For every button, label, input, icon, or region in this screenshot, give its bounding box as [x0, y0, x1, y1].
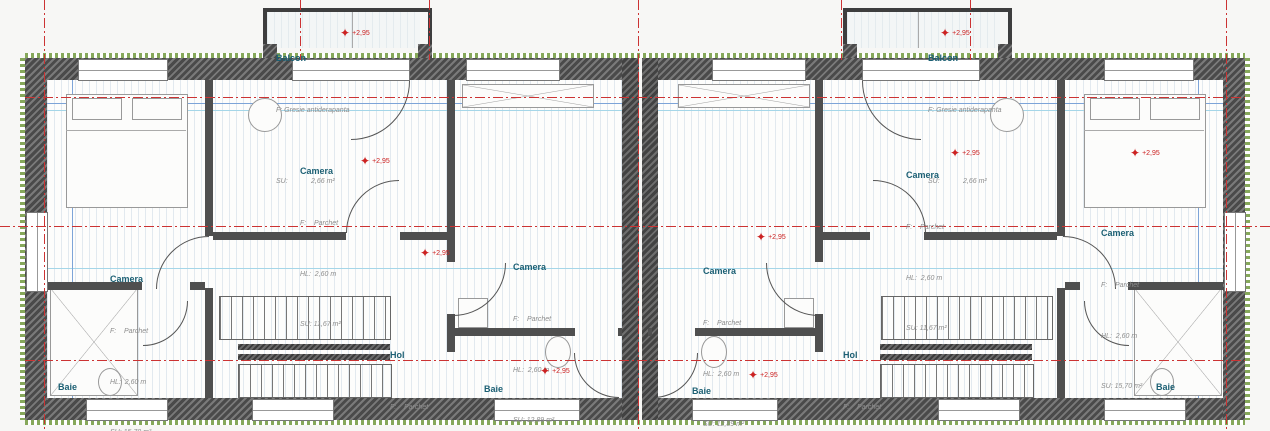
elevation-value: +2,95	[952, 30, 970, 37]
balcony-pier	[843, 44, 857, 58]
window	[466, 59, 560, 81]
room-name: Camera	[110, 274, 151, 286]
window	[712, 59, 806, 81]
room-finish: F: Gresie antiderapanta	[928, 106, 1002, 115]
room-label: Baie F: Gresie HL: 2,60 m SU: 2,87 m²	[1156, 340, 1193, 431]
room-finish: F: Parchet	[110, 327, 151, 336]
wall-partition	[190, 282, 205, 290]
pillow	[132, 98, 182, 120]
elevation-value: +2,95	[552, 368, 570, 375]
wall-partition	[815, 80, 823, 262]
elevation-marker: +2,95	[940, 28, 970, 38]
elevation-marker: +2,95	[360, 156, 390, 166]
wall-partition	[1065, 282, 1080, 290]
room-label: Baie F: Gresie HL: 2,60 m SU: 5,17 m²	[484, 342, 521, 431]
room-name: Camera	[513, 262, 554, 274]
axis-line	[1226, 0, 1227, 431]
room-name: Hol	[390, 350, 428, 362]
room-finish: F: Parchet	[390, 403, 428, 412]
wall-partition	[447, 314, 455, 352]
wall-partition	[618, 328, 622, 336]
room-surface: SU: 11,67 m²	[906, 324, 947, 333]
room-height: HL: 2,60 m	[1101, 332, 1142, 341]
room-name: Camera	[906, 170, 947, 182]
pillow	[1090, 98, 1140, 120]
elevation-marker: +2,95	[756, 232, 786, 242]
elevation-marker: +2,95	[950, 148, 980, 158]
elevation-value: +2,95	[432, 250, 450, 257]
axis-line	[638, 0, 639, 431]
room-finish: F: Gresie antiderapanta	[276, 106, 350, 115]
axis-line	[841, 0, 842, 60]
room-finish: F: Parchet	[843, 403, 881, 412]
elevation-value: +2,95	[352, 30, 370, 37]
wall-partition	[817, 232, 870, 240]
elevation-marker: +2,95	[340, 28, 370, 38]
axis-line	[44, 0, 45, 431]
room-name: Camera	[703, 266, 744, 278]
axis-line	[429, 0, 430, 60]
room-name: Balcon	[928, 53, 1002, 65]
elevation-marker: +2,95	[1130, 148, 1160, 158]
room-height: HL: 2,60 m	[300, 270, 341, 279]
wall-partition	[1128, 282, 1223, 290]
elevation-value: +2,95	[962, 150, 980, 157]
room-label: Baie F: Gresie HL: 2,60 m SU: 5,17 m²	[692, 344, 729, 431]
wall-partition	[205, 80, 213, 236]
elevation-marker: +2,95	[748, 370, 778, 380]
balcony-pier	[263, 44, 277, 58]
room-label: Hol F: Parchet HL: 2,60 m SU: 6,08 m²	[390, 308, 428, 431]
window	[252, 399, 334, 421]
room-name: Camera	[300, 166, 341, 178]
axis-line	[25, 97, 1245, 98]
wardrobe	[678, 84, 810, 108]
room-name: Baie	[692, 386, 729, 398]
wall-partition	[1057, 288, 1065, 398]
room-label: Camera F: Parchet HL: 2,60 m SU: 11,67 m…	[300, 124, 341, 371]
floor-plan-canvas: Balcon F: Gresie antiderapanta SU: 2,66 …	[0, 0, 1270, 431]
room-finish: F: Parchet	[300, 219, 341, 228]
wall-partition	[1057, 80, 1065, 236]
room-name: Balcon	[276, 53, 350, 65]
wall-partition	[447, 80, 455, 262]
room-label: Camera F: Parchet HL: 2,60 m SU: 11,67 m…	[906, 128, 947, 375]
pillow	[72, 98, 122, 120]
room-height: HL: 2,60 m	[110, 378, 151, 387]
axis-line	[0, 226, 1270, 227]
stair-rail	[880, 344, 1032, 350]
blanket-line	[1084, 130, 1204, 131]
wall-partition	[815, 314, 823, 352]
room-finish: F: Parchet	[906, 223, 947, 232]
room-height: HL: 2,60 m	[906, 274, 947, 283]
wardrobe	[462, 84, 594, 108]
room-label: Hol F: Parchet HL: 2,60 m SU: 6,08 m²	[843, 308, 881, 431]
expansion-joint	[639, 58, 642, 420]
balcony-divider	[918, 12, 919, 48]
room-finish: F: Parchet	[1101, 281, 1142, 290]
window	[1104, 59, 1194, 81]
room-label: Baie F: Gresie HL: 2,60 m SU: 2,87 m²	[58, 340, 95, 431]
room-finish: F: Parchet	[513, 315, 554, 324]
elevation-value: +2,95	[768, 234, 786, 241]
window	[78, 59, 168, 81]
room-name: Baie	[1156, 382, 1193, 394]
axis-line	[25, 360, 1245, 361]
wall-partition	[648, 328, 652, 336]
room-surface: SU: 15,70 m²	[1101, 382, 1142, 391]
insulation-strip	[20, 58, 25, 420]
elevation-value: +2,95	[372, 158, 390, 165]
elevation-value: +2,95	[1142, 150, 1160, 157]
elevation-value: +2,95	[760, 372, 778, 379]
window	[1224, 212, 1246, 292]
wall-partition	[400, 232, 453, 240]
pillow	[1150, 98, 1200, 120]
window	[938, 399, 1020, 421]
room-name: Hol	[843, 350, 881, 362]
blanket-line	[66, 130, 186, 131]
room-label: Camera F: Parchet HL: 2,60 m SU: 15,70 m…	[1101, 186, 1142, 431]
wall-partition	[205, 288, 213, 398]
room-name: Baie	[484, 384, 521, 396]
elevation-marker: +2,95	[420, 248, 450, 258]
stair-flight	[880, 364, 1034, 398]
elevation-marker: +2,95	[540, 366, 570, 376]
insulation-strip	[25, 420, 1245, 425]
room-name: Camera	[1101, 228, 1142, 240]
room-surface: SU: 11,67 m²	[300, 320, 341, 329]
room-name: Baie	[58, 382, 95, 394]
room-finish: F: Parchet	[703, 319, 744, 328]
room-label: Camera F: Parchet HL: 2,60 m SU: 15,70 m…	[110, 232, 151, 431]
